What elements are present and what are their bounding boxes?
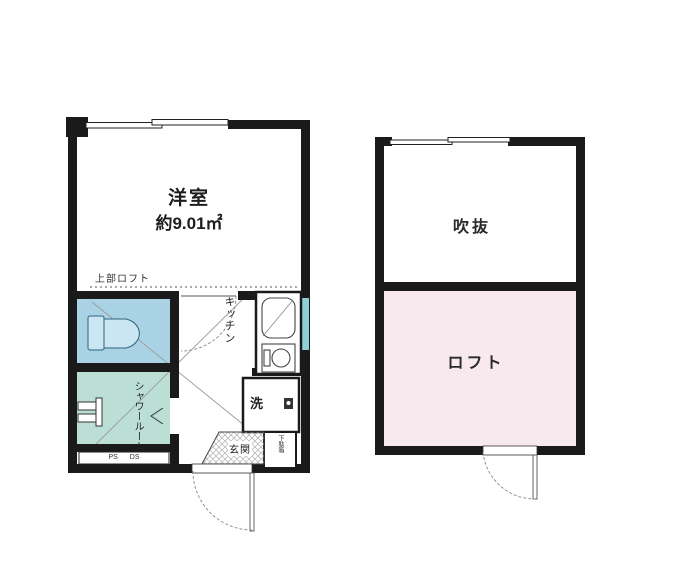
top-window-icon <box>86 120 228 129</box>
floorplan-page: 洋室 約9.01㎡ 上部ロフト キッチン 洗 シャワールーム PS DS 玄関 … <box>0 0 684 573</box>
stove-icon <box>262 344 295 372</box>
western-room-label: 洋室 <box>168 183 210 210</box>
room-area-label: 約9.01㎡ <box>155 209 222 234</box>
shoe-cabinet-label: 下駄箱 <box>276 435 283 467</box>
entrance-label: 玄関 <box>228 441 252 456</box>
side-window-icon <box>302 298 309 350</box>
washer-label: 洗 <box>250 393 263 412</box>
pipe-duct-label: PS DS <box>79 454 169 461</box>
loft-top-window-icon <box>390 138 510 145</box>
shower-room-label: シャワールーム <box>131 381 144 427</box>
loft-above-note: 上部ロフト <box>95 270 150 285</box>
loft-floor-plan <box>375 137 585 499</box>
toilet-icon <box>88 316 139 350</box>
front-door-arc-icon <box>192 464 254 531</box>
floorplan-drawing <box>0 0 684 573</box>
loft-room-label: ロフト <box>447 349 504 373</box>
loft-door-arc-icon <box>483 446 537 499</box>
kitchen-counter <box>256 292 301 374</box>
first-floor-plan <box>66 117 310 531</box>
void-room-label: 吹抜 <box>453 213 491 237</box>
kitchen-label: キッチン <box>222 296 236 372</box>
